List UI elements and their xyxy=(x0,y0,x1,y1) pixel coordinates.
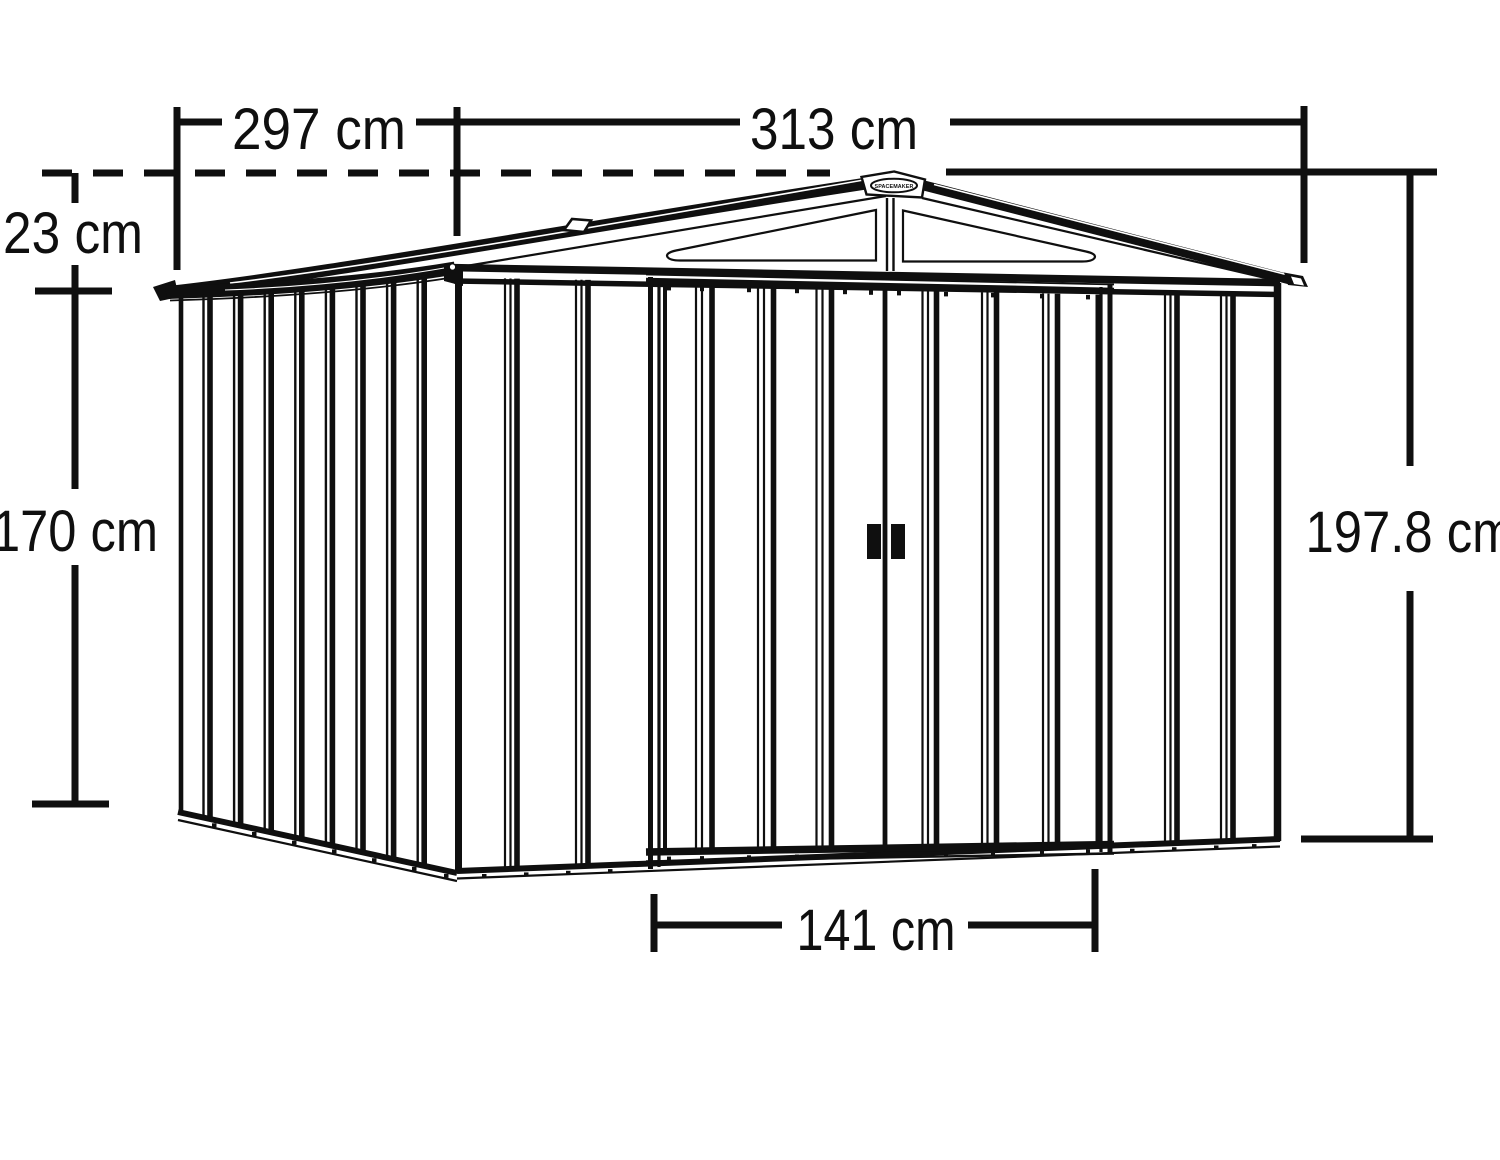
svg-text:197.8 cm: 197.8 cm xyxy=(1306,500,1500,565)
svg-text:141 cm: 141 cm xyxy=(797,898,956,963)
svg-text:SPACEMAKER: SPACEMAKER xyxy=(875,184,914,190)
svg-text:313 cm: 313 cm xyxy=(750,97,918,162)
svg-text:297 cm: 297 cm xyxy=(232,97,406,162)
svg-text:170 cm: 170 cm xyxy=(0,499,158,564)
svg-text:23 cm: 23 cm xyxy=(3,201,143,266)
